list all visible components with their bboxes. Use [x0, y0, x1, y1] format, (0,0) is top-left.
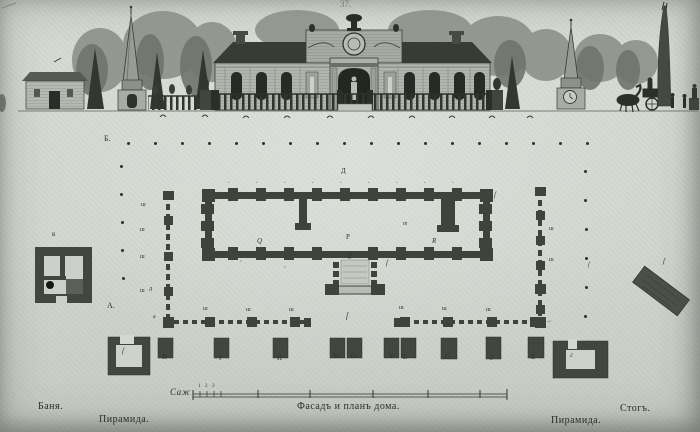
- outbuilding-G: [441, 338, 457, 359]
- house-plan: [201, 188, 493, 295]
- pyramid-right-plan: [553, 339, 608, 378]
- scrub-marks: [160, 115, 533, 118]
- outbuilding-E: [528, 337, 544, 358]
- figures: [671, 93, 687, 108]
- outbuilding-L: [401, 338, 416, 358]
- facade-engraving: [0, 2, 699, 118]
- poplar-tree: [658, 2, 671, 106]
- outbuilding-F: [486, 337, 501, 359]
- outbuilding-N: [384, 338, 399, 358]
- portico-plan: [325, 260, 385, 295]
- outbuilding-H: [273, 338, 288, 358]
- haystack-plan: [633, 266, 690, 316]
- scale-bar: [193, 389, 507, 400]
- estate-drawing: [0, 0, 700, 432]
- interior-walls: [295, 199, 459, 232]
- pyramid-left-plan: [108, 335, 150, 375]
- outbuilding-K: [158, 338, 173, 358]
- outbuilding-O: [347, 338, 362, 358]
- outbuilding-I: [214, 338, 229, 358]
- stove-mark: [46, 281, 54, 289]
- outbuilding-M: [330, 338, 345, 358]
- bath-plan: [35, 247, 92, 303]
- scratch-mark: [2, 3, 16, 8]
- garden-statue: [689, 84, 699, 110]
- engraving-photo: 37. Баня. Пирамида. Саж Фасадъ и планъ д…: [0, 0, 700, 432]
